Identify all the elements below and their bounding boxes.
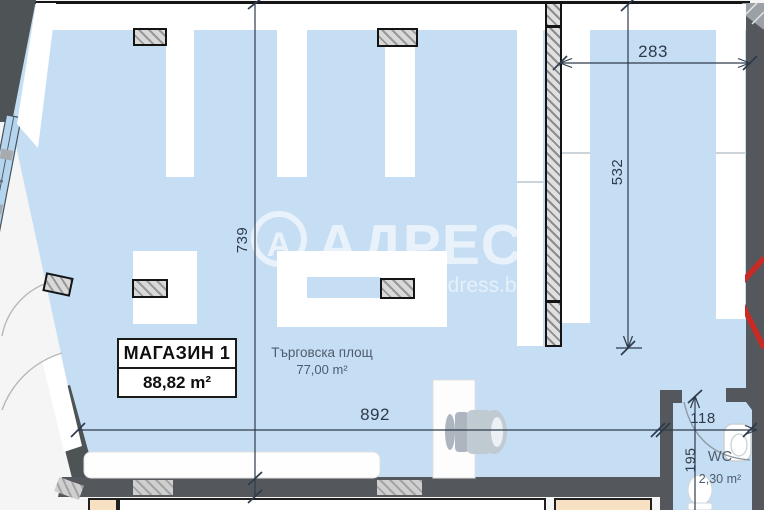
- dim-532-label: 532: [609, 154, 627, 190]
- dim-118-label: 118: [683, 410, 723, 427]
- unit-label-box: МАГАЗИН 1 88,82 m²: [117, 338, 237, 398]
- dim-283-label: 283: [628, 42, 678, 62]
- dim-739-label: 739: [234, 222, 252, 258]
- trade-area-value: 77,00 m²: [252, 362, 392, 377]
- trade-area-label: Търговска площ: [252, 345, 392, 360]
- wc-label: WC: [700, 449, 740, 465]
- plan-labels: 739 283 532 892 118 195 Търговска площ 7…: [0, 0, 764, 510]
- wc-area-value: 2,30 m²: [690, 472, 750, 486]
- dim-892-label: 892: [350, 405, 400, 425]
- unit-title: МАГАЗИН 1: [119, 340, 235, 369]
- unit-area: 88,82 m²: [119, 369, 235, 396]
- floor-plan: А АДРЕС ddress.b: [0, 0, 764, 510]
